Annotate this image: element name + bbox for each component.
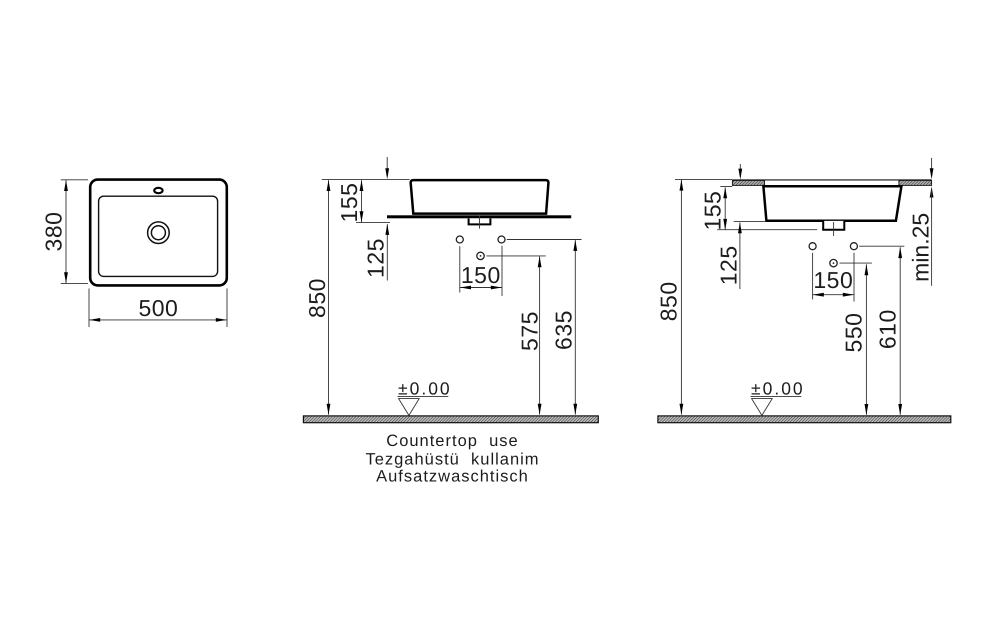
- svg-text:850: 850: [304, 278, 330, 318]
- svg-text:150: 150: [813, 267, 853, 293]
- svg-text:155: 155: [336, 183, 362, 223]
- svg-text:125: 125: [716, 245, 742, 285]
- svg-text:min.25: min.25: [908, 213, 934, 282]
- svg-text:Aufsatzwaschtisch: Aufsatzwaschtisch: [376, 468, 529, 486]
- svg-text:Countertop use: Countertop use: [386, 432, 518, 450]
- svg-text:500: 500: [138, 295, 178, 321]
- svg-text:125: 125: [362, 238, 388, 278]
- svg-text:635: 635: [550, 310, 576, 350]
- svg-text:575: 575: [517, 311, 543, 351]
- svg-text:380: 380: [40, 212, 66, 252]
- svg-text:±0.00: ±0.00: [398, 379, 452, 399]
- svg-text:150: 150: [461, 262, 501, 288]
- svg-text:±0.00: ±0.00: [751, 379, 805, 399]
- svg-text:550: 550: [840, 313, 866, 353]
- svg-text:Tezgahüstü kullanim: Tezgahüstü kullanim: [365, 450, 539, 468]
- svg-text:155: 155: [700, 191, 726, 231]
- svg-text:610: 610: [874, 309, 900, 349]
- svg-text:850: 850: [656, 281, 682, 321]
